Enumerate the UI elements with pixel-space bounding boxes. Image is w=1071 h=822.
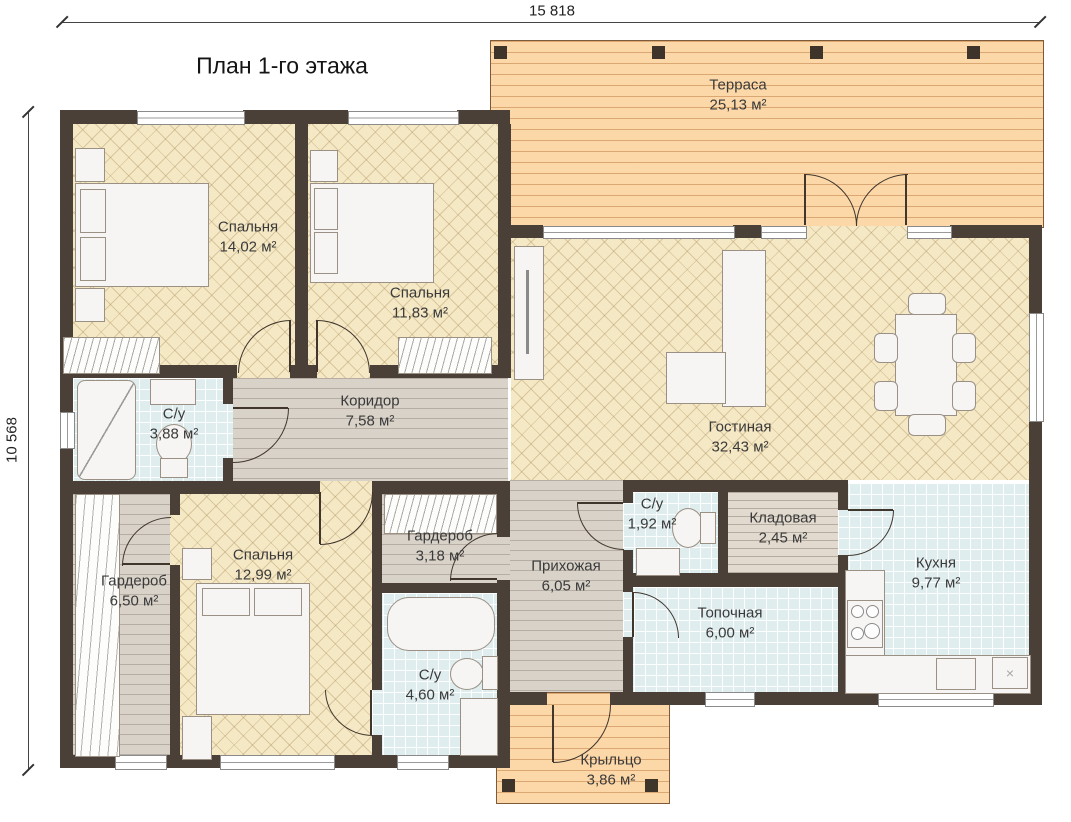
sink-icon	[636, 548, 680, 576]
burner-icon	[866, 605, 879, 618]
terrace-door-leaf	[804, 174, 806, 225]
nightstand-icon	[75, 288, 105, 322]
room-area: 2,45 м²	[749, 528, 816, 548]
wall-segment	[60, 110, 137, 124]
door-leaf	[319, 492, 321, 544]
room-name: Прихожая	[531, 557, 601, 577]
shower-icon	[77, 380, 136, 480]
chair-icon	[952, 381, 976, 411]
nightstand-icon	[182, 716, 212, 760]
door-leaf	[450, 578, 497, 580]
wall-segment	[457, 110, 510, 124]
window	[115, 755, 167, 770]
wall-segment	[372, 735, 382, 768]
room-name: Кухня	[912, 554, 961, 574]
door-leaf	[370, 690, 372, 735]
room-label-wardrobe2: Гардероб 3,18 м²	[407, 527, 473, 566]
room-name: С/у	[628, 495, 677, 515]
room-name: Крыльцо	[580, 751, 641, 771]
wall-segment	[497, 481, 510, 537]
room-name: Терраса	[709, 76, 767, 96]
wall-segment	[718, 492, 728, 575]
floor-plan: 15 818 10 568 План 1-го этажа	[0, 0, 1071, 822]
window	[1029, 313, 1044, 422]
chair-icon	[874, 381, 898, 411]
window	[397, 755, 449, 770]
room-area: 11,83 м²	[390, 303, 450, 323]
wall-segment	[372, 481, 510, 494]
room-area: 6,00 м²	[697, 623, 762, 643]
room-label-bedroom2: Спальня 11,83 м²	[390, 284, 450, 323]
window	[907, 226, 952, 239]
room-label-boiler-room: Топочная 6,00 м²	[697, 604, 762, 643]
room-name: Гардероб	[101, 572, 167, 592]
toilet-tank-icon	[482, 656, 498, 690]
room-name: Кладовая	[749, 509, 816, 529]
nightstand-icon	[310, 150, 338, 182]
chair-icon	[952, 333, 976, 363]
door-leaf	[233, 407, 288, 409]
room-name: Спальня	[390, 284, 450, 304]
window	[543, 226, 735, 239]
x-glyph: ×	[1006, 665, 1014, 681]
room-area: 12,99 м²	[233, 565, 293, 585]
wardrobe-icon	[63, 337, 160, 374]
room-label-pantry: Кладовая 2,45 м²	[749, 509, 816, 548]
wall-segment	[610, 692, 705, 705]
window	[137, 111, 245, 125]
room-label-living-room: Гостиная 32,43 м²	[709, 418, 772, 457]
left-dimension-label: 10 568	[4, 417, 21, 463]
dishwasher-icon: ×	[992, 657, 1028, 689]
room-label-wardrobe1: Гардероб 6,50 м²	[101, 572, 167, 611]
terrace-post	[967, 46, 980, 59]
burner-icon	[851, 605, 864, 618]
page-title: План 1-го этажа	[196, 53, 368, 80]
pillow-icon	[80, 237, 106, 281]
kitchen-sink-icon	[936, 658, 976, 690]
pillow-icon	[254, 588, 302, 616]
pillow-icon	[202, 588, 250, 616]
wall-segment	[60, 481, 320, 494]
dining-table-icon	[895, 314, 957, 416]
room-label-bedroom1: Спальня 14,02 м²	[218, 218, 278, 257]
terrace-post	[652, 46, 665, 59]
sofa-chaise-icon	[666, 352, 726, 404]
room-label-bathroom1: С/у 3,88 м²	[150, 405, 199, 444]
terrace-post	[494, 46, 507, 59]
window	[348, 111, 459, 125]
wall-segment	[623, 550, 633, 592]
wall-segment	[508, 225, 543, 238]
window	[761, 226, 807, 239]
wall-segment	[223, 458, 233, 481]
room-area: 3,88 м²	[150, 424, 199, 444]
room-name: Гостиная	[709, 418, 772, 438]
room-name: Спальня	[233, 546, 293, 566]
room-area: 3,18 м²	[407, 546, 473, 566]
wall-segment	[1029, 238, 1042, 313]
room-area: 4,60 м²	[406, 685, 455, 705]
room-area: 9,77 м²	[912, 573, 961, 593]
top-dimension-line	[62, 22, 1040, 23]
wall-segment	[623, 637, 633, 692]
wall-segment	[170, 481, 180, 515]
room-name: Гардероб	[407, 527, 473, 547]
wall-segment	[243, 110, 348, 124]
room-label-porch: Крыльцо 3,86 м²	[580, 751, 641, 790]
terrace-post	[810, 46, 823, 59]
window	[705, 692, 755, 707]
door-leaf	[316, 320, 318, 372]
toilet-tank-icon	[160, 458, 188, 478]
room-name: Топочная	[697, 604, 762, 624]
room-area: 32,43 м²	[709, 437, 772, 457]
room-area: 25,13 м²	[709, 95, 767, 115]
terrace-deck	[490, 40, 1044, 228]
door-leaf	[122, 563, 170, 565]
door-leaf	[289, 320, 291, 372]
shelving-icon	[75, 494, 120, 757]
room-name: Коридор	[340, 392, 399, 412]
tv-stand-icon	[514, 246, 544, 380]
porch-post	[502, 779, 515, 792]
nightstand-icon	[75, 148, 105, 182]
room-area: 6,05 м²	[531, 576, 601, 596]
chair-icon	[908, 414, 946, 436]
wall-segment	[223, 378, 233, 404]
wall-segment	[295, 124, 308, 365]
room-area: 14,02 м²	[218, 237, 278, 257]
room-name: С/у	[406, 666, 455, 686]
room-label-bathroom2: С/у 4,60 м²	[406, 666, 455, 705]
wall-segment	[170, 565, 180, 768]
entrance-door-leaf	[552, 705, 554, 762]
burner-icon	[851, 627, 864, 640]
room-label-bedroom3: Спальня 12,99 м²	[233, 546, 293, 585]
wardrobe-icon	[398, 337, 492, 374]
room-area: 7,58 м²	[340, 411, 399, 431]
tv-icon	[526, 270, 529, 354]
wall-segment	[497, 692, 547, 705]
window	[878, 692, 994, 707]
room-name: Спальня	[218, 218, 278, 238]
sink-icon	[150, 379, 196, 405]
wall-segment	[498, 124, 511, 378]
top-dimension-label: 15 818	[529, 3, 575, 20]
wall-segment	[382, 583, 497, 593]
left-dimension-line	[28, 112, 29, 770]
window	[220, 755, 335, 770]
chair-icon	[908, 293, 946, 315]
pillow-icon	[314, 232, 338, 274]
porch-post	[645, 779, 658, 792]
nightstand-icon	[182, 548, 212, 580]
room-label-wc: С/у 1,92 м²	[628, 495, 677, 534]
pillow-icon	[314, 188, 338, 230]
stove-icon	[847, 600, 883, 648]
wall-segment	[290, 365, 317, 378]
toilet-icon	[450, 658, 484, 690]
chair-icon	[874, 333, 898, 363]
room-label-corridor: Коридор 7,58 м²	[340, 392, 399, 431]
room-area: 1,92 м²	[628, 514, 677, 534]
wall-segment	[733, 225, 761, 238]
sofa-icon	[722, 250, 766, 407]
door-leaf	[632, 592, 634, 637]
wall-segment	[950, 225, 1042, 238]
door-leaf	[848, 509, 893, 511]
burner-icon	[864, 623, 880, 639]
room-name: С/у	[150, 405, 199, 425]
washing-machine-icon	[460, 698, 498, 756]
wall-segment	[60, 447, 73, 768]
toilet-tank-icon	[700, 512, 716, 544]
wall-segment	[333, 755, 397, 768]
wall-segment	[372, 494, 382, 690]
room-area: 6,50 м²	[101, 591, 167, 611]
room-area: 3,86 м²	[580, 770, 641, 790]
room-label-terrace: Терраса 25,13 м²	[709, 76, 767, 115]
terrace-door-leaf	[905, 174, 907, 225]
bathtub-icon	[387, 597, 495, 651]
wall-segment	[623, 480, 848, 492]
door-leaf	[577, 502, 623, 504]
wall-segment	[497, 580, 510, 768]
window	[60, 412, 75, 449]
wall-segment	[838, 492, 848, 510]
pillow-icon	[80, 189, 106, 233]
room-label-kitchen: Кухня 9,77 м²	[912, 554, 961, 593]
room-label-hallway: Прихожая 6,05 м²	[531, 557, 601, 596]
